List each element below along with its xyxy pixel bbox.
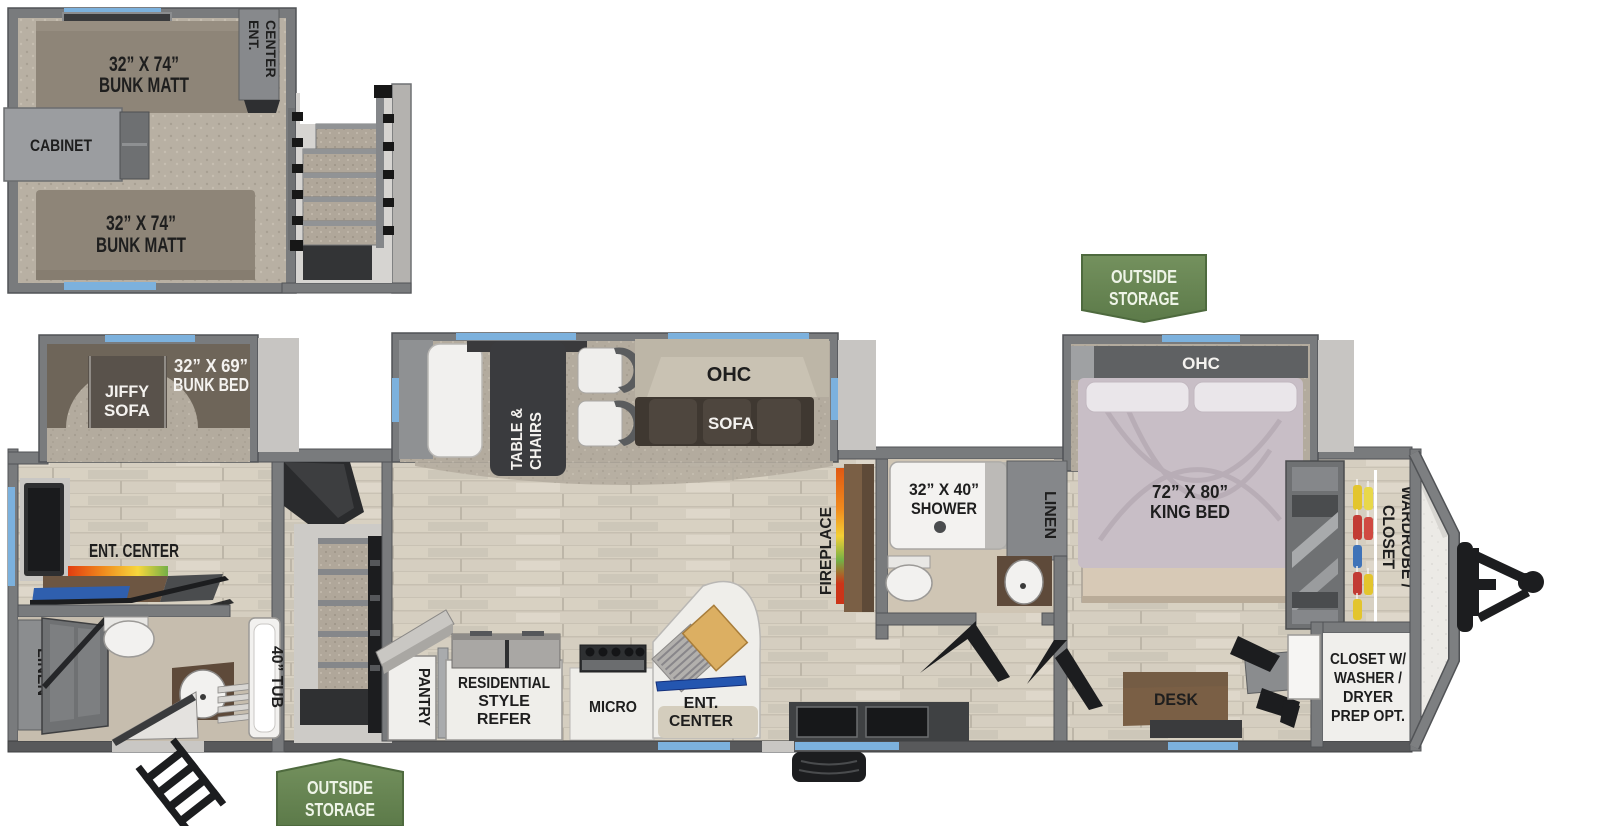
svg-text:RESIDENTIAL: RESIDENTIAL [458,675,550,692]
svg-text:FIREPLACE: FIREPLACE [818,507,835,595]
svg-text:CLOSET: CLOSET [1379,505,1398,570]
svg-text:KING BED: KING BED [1150,502,1230,522]
svg-text:WASHER /: WASHER / [1334,670,1402,687]
svg-text:32” X 74”: 32” X 74” [109,53,179,76]
svg-text:ENT.: ENT. [246,20,262,50]
svg-text:MICRO: MICRO [589,699,637,716]
svg-text:SHOWER: SHOWER [911,499,977,518]
svg-text:32” X 69”: 32” X 69” [174,356,248,376]
svg-text:STYLE: STYLE [478,693,530,710]
svg-text:OHC: OHC [707,364,751,386]
svg-text:ENT. CENTER: ENT. CENTER [89,541,179,561]
svg-text:JIFFY: JIFFY [105,382,150,401]
svg-text:OUTSIDE: OUTSIDE [1111,267,1177,287]
svg-text:REFER: REFER [477,711,532,728]
svg-text:40” TUB: 40” TUB [268,646,285,708]
svg-text:DESK: DESK [1154,690,1199,709]
svg-text:CABINET: CABINET [30,136,92,155]
svg-text:OUTSIDE: OUTSIDE [307,778,373,798]
svg-text:PREP OPT.: PREP OPT. [1331,708,1405,725]
svg-text:BUNK MATT: BUNK MATT [96,234,186,257]
svg-text:32” X 40”: 32” X 40” [909,480,979,499]
svg-text:STORAGE: STORAGE [1109,289,1179,309]
svg-text:CENTER: CENTER [263,20,279,78]
svg-text:BUNK BED: BUNK BED [173,375,249,395]
svg-text:DRYER: DRYER [1343,689,1393,706]
svg-text:72” X 80”: 72” X 80” [1152,482,1228,502]
svg-text:CLOSET W/: CLOSET W/ [1330,651,1406,668]
svg-text:BUNK MATT: BUNK MATT [99,74,189,97]
svg-text:CHAIRS: CHAIRS [528,412,545,470]
svg-text:OHC: OHC [1182,354,1220,373]
svg-text:PANTRY: PANTRY [415,668,432,726]
svg-text:CENTER: CENTER [669,713,733,730]
svg-text:ENT.: ENT. [684,695,719,712]
svg-text:TABLE &: TABLE & [509,408,526,470]
svg-text:STORAGE: STORAGE [305,800,375,820]
svg-text:SOFA: SOFA [708,414,754,433]
svg-text:SOFA: SOFA [104,401,150,420]
svg-text:LINEN: LINEN [1041,491,1058,539]
svg-text:32” X 74”: 32” X 74” [106,212,176,235]
